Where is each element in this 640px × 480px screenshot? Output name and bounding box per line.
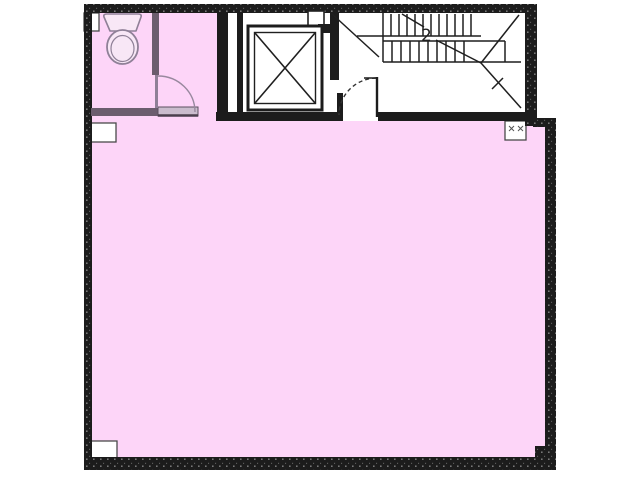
main-room-floor (91, 108, 546, 458)
service-block-bottom-wall-right (378, 112, 537, 121)
stair-run-line-3 (436, 40, 481, 63)
wc-bottom-wall (91, 108, 158, 116)
right-wall (545, 118, 556, 470)
stair-break-tick (492, 78, 503, 89)
service-block-west-wall (217, 13, 228, 121)
stair-winder-line-1 (481, 15, 519, 63)
hallway-floor (150, 13, 217, 122)
stairwell-right-wall (525, 4, 537, 126)
stair-landing-west-wall (330, 13, 339, 80)
stairwell-door-arc (339, 78, 376, 115)
corner-block-bottom-right (535, 446, 556, 470)
floorplan-canvas: 2 (0, 0, 640, 480)
stair-floor-label: 2 (421, 26, 432, 46)
wc-side-wall (152, 13, 159, 75)
notch-left-wall (91, 123, 116, 142)
notch-bottom-left (91, 441, 117, 458)
left-wall (84, 4, 92, 470)
wc-door-closed-line (155, 75, 158, 108)
floorplan-drawing: 2 (0, 0, 640, 480)
top-wall-service-box (308, 11, 324, 26)
bottom-wall (84, 457, 556, 470)
stair-run-line-4 (481, 63, 521, 108)
shaft-cavity-wall (237, 13, 243, 121)
toilet-tank (104, 14, 141, 31)
service-block-bottom-wall-left (216, 112, 337, 121)
